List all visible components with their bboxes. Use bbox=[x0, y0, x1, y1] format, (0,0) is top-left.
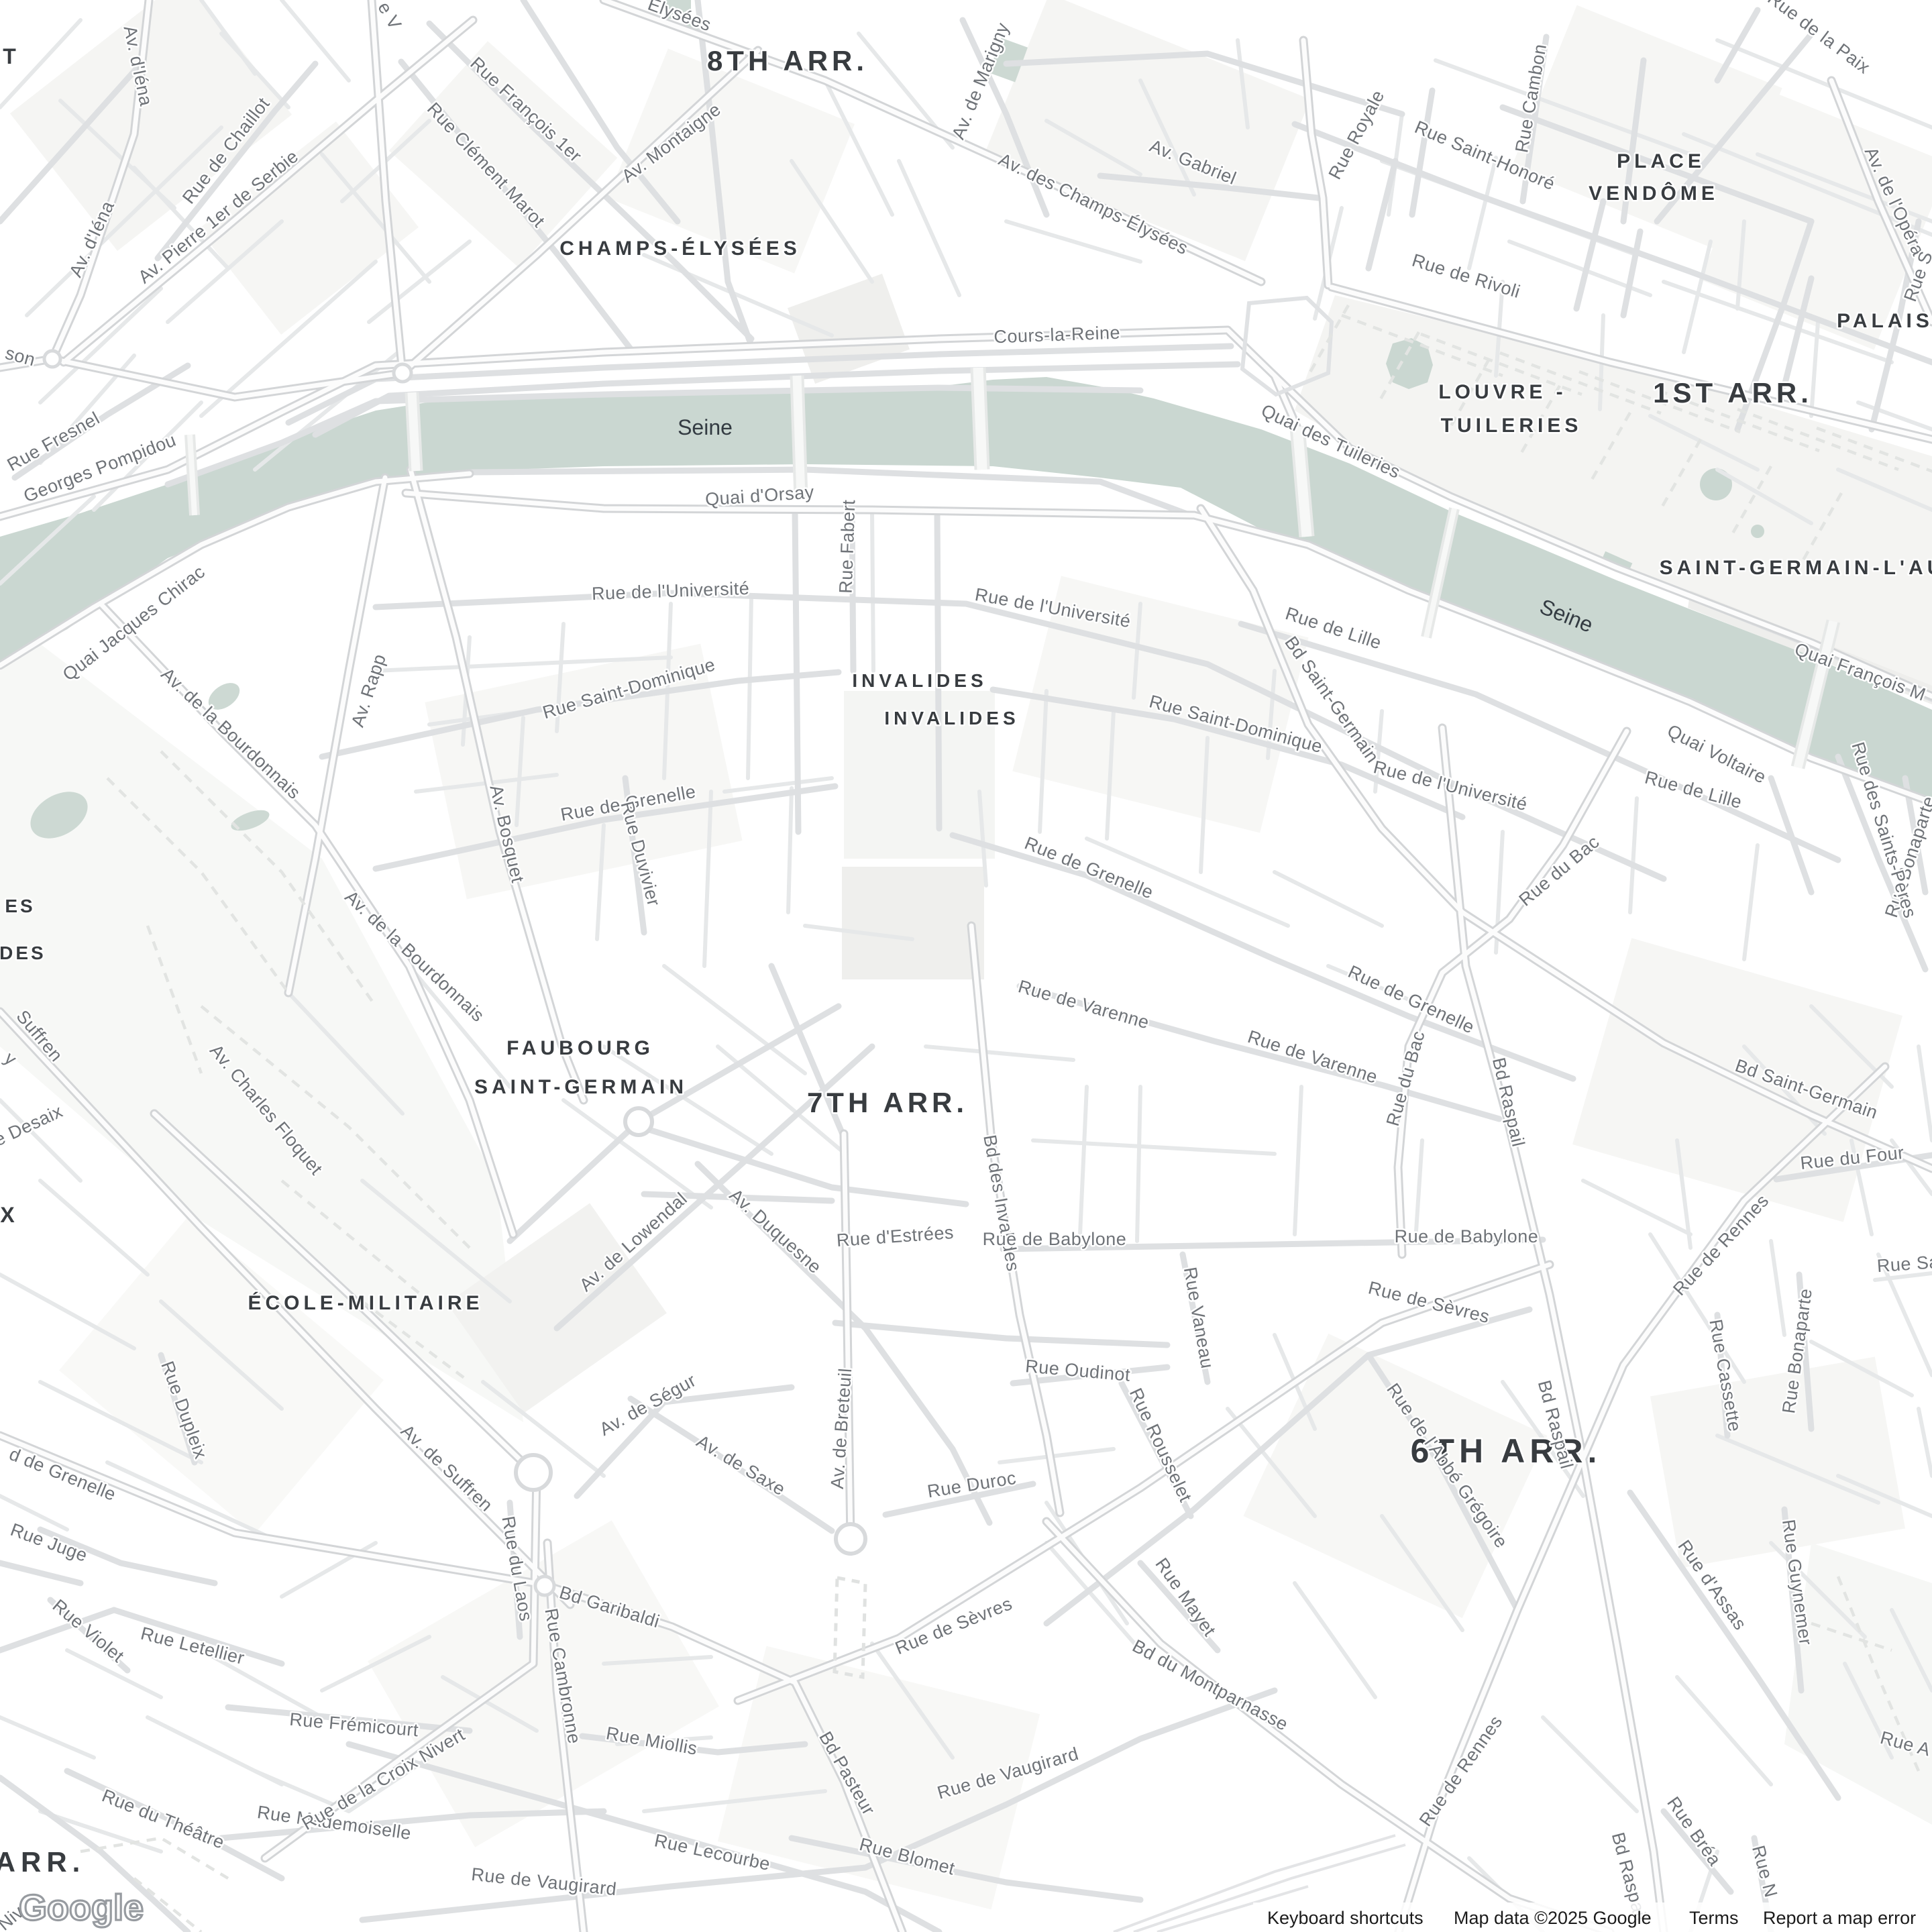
svg-text:T: T bbox=[3, 44, 17, 68]
svg-text:X: X bbox=[0, 1203, 15, 1227]
svg-text:Keyboard shortcuts: Keyboard shortcuts bbox=[1267, 1908, 1424, 1928]
svg-text:Terms: Terms bbox=[1689, 1908, 1739, 1928]
svg-text:Seine: Seine bbox=[678, 415, 733, 439]
svg-text:SAINT-GERMAIN-L'AUX: SAINT-GERMAIN-L'AUX bbox=[1660, 557, 1932, 579]
svg-text:SAINT-GERMAIN: SAINT-GERMAIN bbox=[474, 1076, 688, 1098]
svg-text:ES: ES bbox=[5, 896, 35, 916]
svg-text:INVALIDES: INVALIDES bbox=[852, 670, 987, 691]
svg-text:VENDÔME: VENDÔME bbox=[1589, 182, 1719, 205]
svg-text:Rue Sa: Rue Sa bbox=[1876, 1252, 1932, 1276]
svg-text:TUILERIES: TUILERIES bbox=[1441, 415, 1582, 437]
svg-text:1ST ARR.: 1ST ARR. bbox=[1653, 377, 1813, 409]
svg-text:ARR.: ARR. bbox=[0, 1846, 85, 1878]
svg-text:Rue Fabert: Rue Fabert bbox=[836, 499, 859, 594]
svg-text:Map data ©2025 Google: Map data ©2025 Google bbox=[1454, 1908, 1652, 1928]
svg-text:CHAMPS-ÉLYSÉES: CHAMPS-ÉLYSÉES bbox=[559, 237, 801, 260]
svg-text:SEINE1: SEINE1 bbox=[0, 0, 3, 1]
svg-text:FAUBOURG: FAUBOURG bbox=[506, 1037, 654, 1059]
svg-text:Report a map error: Report a map error bbox=[1763, 1908, 1916, 1928]
svg-text:LOUVRE -: LOUVRE - bbox=[1438, 381, 1566, 403]
svg-text:8TH ARR.: 8TH ARR. bbox=[707, 45, 868, 76]
svg-text:PLACE: PLACE bbox=[1617, 150, 1705, 172]
svg-text:IDES: IDES bbox=[0, 943, 46, 963]
svg-text:INVALIDES: INVALIDES bbox=[884, 708, 1019, 729]
svg-text:Google: Google bbox=[19, 1888, 144, 1928]
svg-text:Rue de Babylone: Rue de Babylone bbox=[983, 1229, 1127, 1249]
svg-text:Rue de Babylone: Rue de Babylone bbox=[1395, 1226, 1539, 1246]
svg-text:7TH ARR.: 7TH ARR. bbox=[807, 1087, 968, 1118]
svg-text:PALAIS-: PALAIS- bbox=[1837, 310, 1932, 332]
svg-text:ÉCOLE-MILITAIRE: ÉCOLE-MILITAIRE bbox=[248, 1291, 483, 1314]
